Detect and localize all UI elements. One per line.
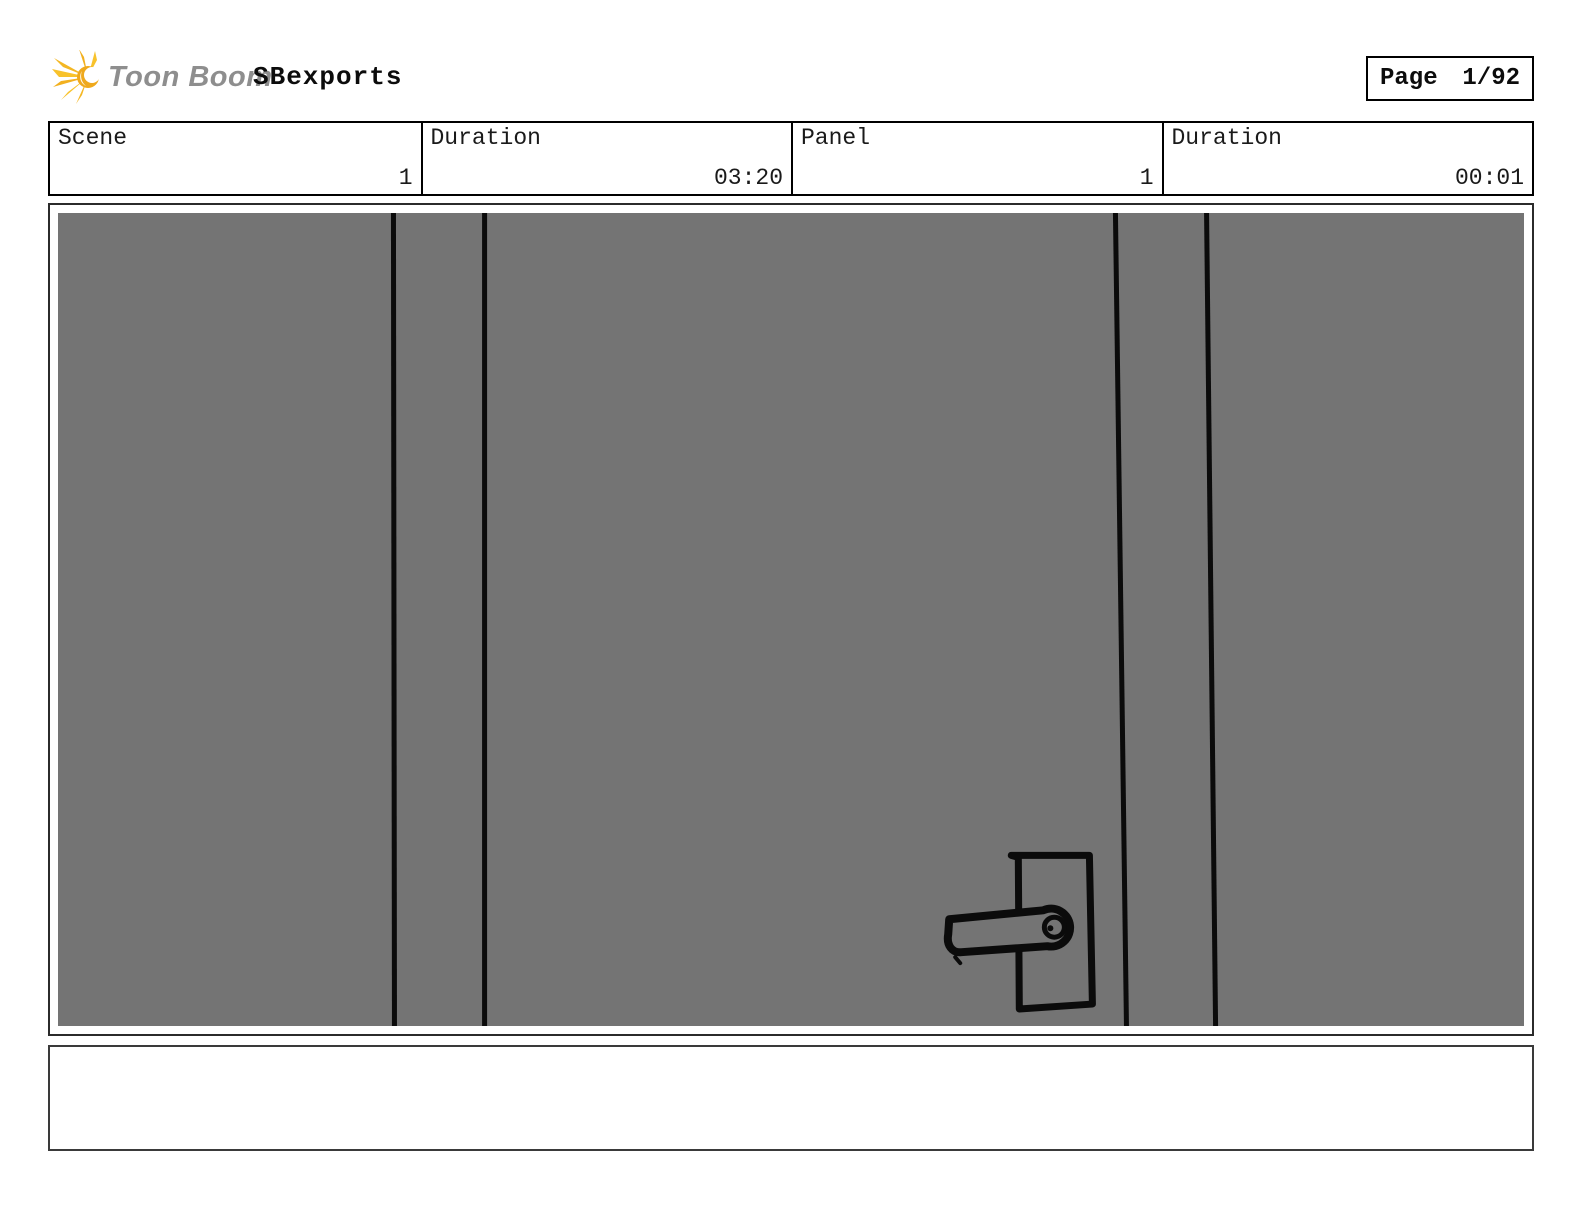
page-value: 1/92 — [1462, 65, 1520, 92]
scene-duration-cell: Duration 03:20 — [421, 123, 792, 194]
storyboard-panel-drawing — [58, 213, 1524, 1026]
document-title: SBexports — [253, 62, 402, 92]
scene-label: Scene — [58, 125, 127, 151]
caption-box — [48, 1045, 1534, 1151]
page-label: Page — [1380, 65, 1438, 92]
scene-value: 1 — [399, 165, 413, 191]
toonboom-starburst-icon — [52, 50, 104, 104]
storyboard-panel-canvas — [58, 213, 1524, 1026]
panel-duration-value: 00:01 — [1455, 165, 1524, 191]
header: Toon Boom SBexports Page 1/92 — [48, 48, 1534, 110]
panel-number-label: Panel — [801, 125, 870, 151]
panel-duration-label: Duration — [1172, 125, 1282, 151]
panel-duration-cell: Duration 00:01 — [1162, 123, 1533, 194]
page-indicator: Page 1/92 — [1366, 56, 1534, 101]
panel-number-value: 1 — [1140, 165, 1154, 191]
scene-duration-value: 03:20 — [714, 165, 783, 191]
panel-number-cell: Panel 1 — [791, 123, 1162, 194]
scene-duration-label: Duration — [431, 125, 541, 151]
panel-info-table: Scene 1 Duration 03:20 Panel 1 Duration … — [48, 121, 1534, 196]
storyboard-export-page: Toon Boom SBexports Page 1/92 Scene 1 Du… — [0, 0, 1584, 1224]
scene-cell: Scene 1 — [50, 123, 421, 194]
toonboom-logo: Toon Boom — [52, 50, 273, 104]
storyboard-panel-frame — [48, 203, 1534, 1036]
brand-name: Toon Boom — [108, 61, 273, 94]
